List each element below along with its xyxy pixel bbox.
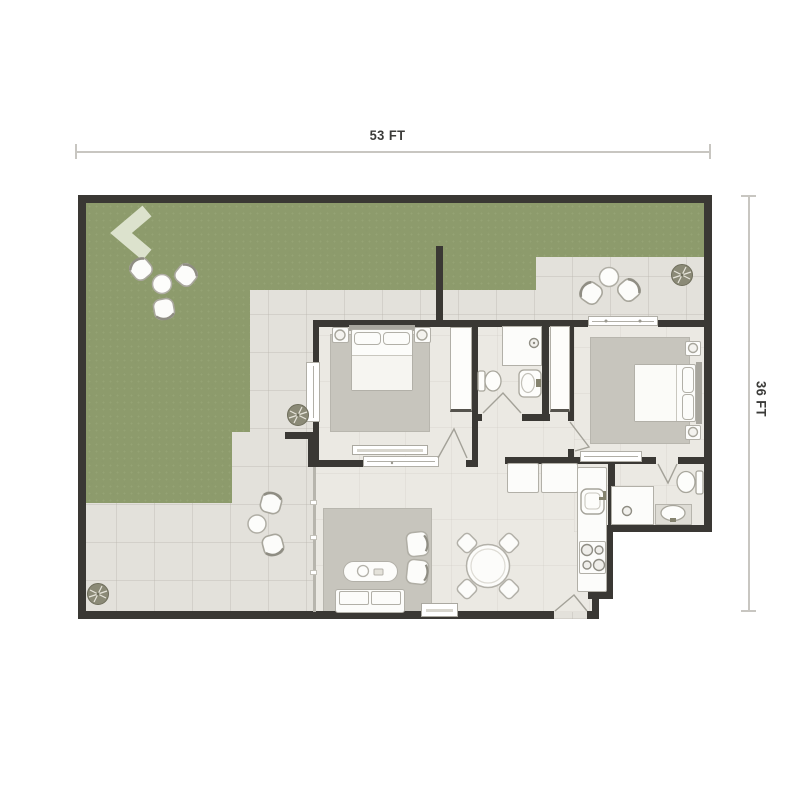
plan-detail-layer <box>0 0 800 800</box>
coffee-table-decor-icon <box>358 566 384 577</box>
bathroom1-shower-head-icon <box>530 339 539 348</box>
table-lamp-icon <box>335 330 698 437</box>
outdoor-table-icon <box>153 268 619 534</box>
bathroom2-shower-drain-icon <box>623 507 632 516</box>
stove-burners-icon <box>582 545 605 571</box>
dining-table-icon <box>467 545 510 588</box>
bathroom2-toilet-icon <box>677 471 703 494</box>
bathroom1-sink-icon <box>519 370 541 397</box>
bathroom2-vanity-sink-icon <box>661 506 685 523</box>
armchair-icon <box>406 531 429 585</box>
bathroom1-toilet-icon <box>478 371 501 391</box>
kitchen-sink-icon <box>581 489 606 514</box>
sliding-door-dots-icon <box>391 320 642 465</box>
outdoor-chair-icon <box>127 255 643 557</box>
entry-arrow-icon <box>121 211 147 255</box>
floorplan-canvas: 53 FT 36 FT <box>0 0 800 800</box>
